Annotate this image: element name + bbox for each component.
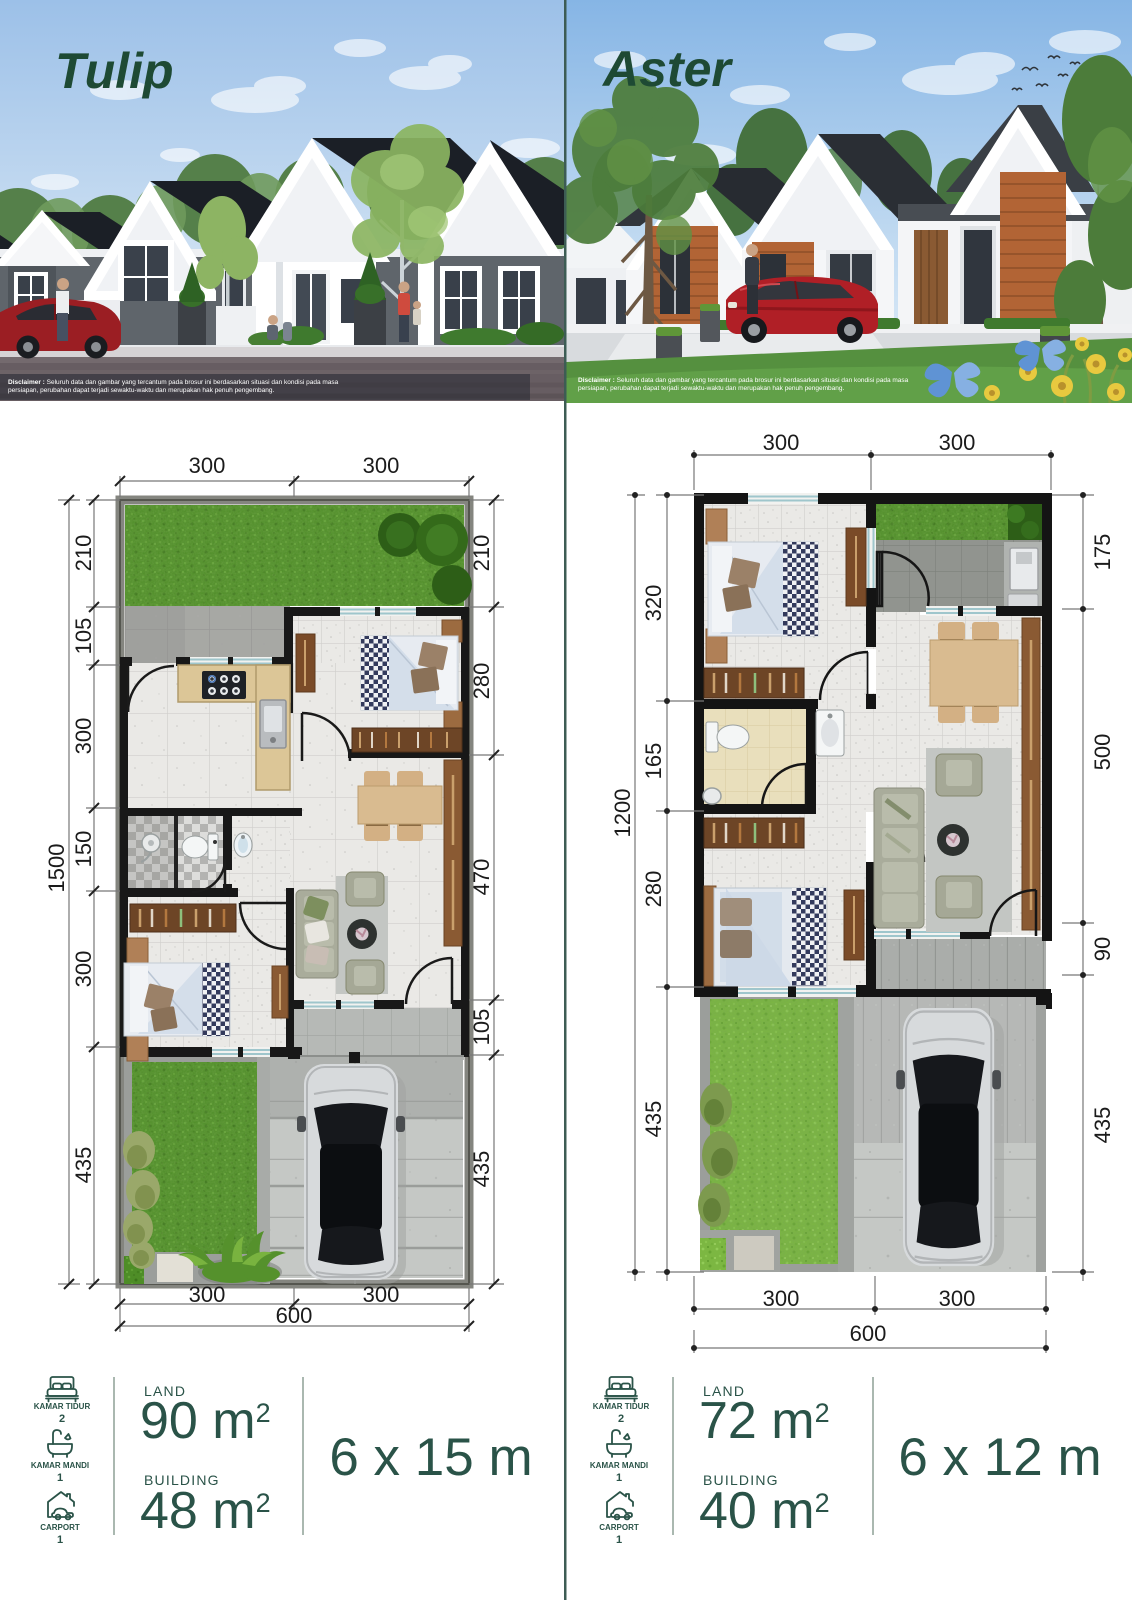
svg-text:300: 300 [71,951,96,988]
svg-text:1200: 1200 [610,789,635,838]
svg-text:KAMAR MANDI: KAMAR MANDI [31,1461,89,1470]
svg-text:210: 210 [469,535,494,572]
svg-text:300: 300 [189,1282,226,1307]
svg-text:150: 150 [71,831,96,868]
svg-text:1: 1 [57,1534,63,1546]
svg-text:300: 300 [363,453,400,478]
svg-text:280: 280 [641,871,666,908]
svg-text:persiapan, perubahan dapat ter: persiapan, perubahan dapat terjadi sewak… [578,385,845,392]
svg-text:600: 600 [276,1303,313,1328]
svg-text:300: 300 [189,453,226,478]
svg-text:300: 300 [71,718,96,755]
svg-text:300: 300 [363,1282,400,1307]
svg-text:Disclaimer : Seluruh data dan: Disclaimer : Seluruh data dan gambar yan… [8,379,339,386]
svg-text:105: 105 [71,618,96,655]
svg-text:2: 2 [59,1413,65,1425]
svg-text:72 m2: 72 m2 [699,1392,830,1450]
svg-text:500: 500 [1090,734,1115,771]
svg-text:CARPORT: CARPORT [40,1523,80,1532]
svg-text:90: 90 [1090,937,1115,961]
svg-text:165: 165 [641,743,666,780]
svg-text:320: 320 [641,585,666,622]
svg-text:KAMAR TIDUR: KAMAR TIDUR [34,1402,91,1411]
svg-text:300: 300 [763,1286,800,1311]
svg-text:300: 300 [939,430,976,455]
svg-text:435: 435 [71,1147,96,1184]
svg-text:300: 300 [939,1286,976,1311]
svg-text:Aster: Aster [601,41,733,97]
svg-text:KAMAR MANDI: KAMAR MANDI [590,1461,648,1470]
svg-text:435: 435 [469,1151,494,1188]
svg-text:1500: 1500 [44,844,69,893]
svg-text:210: 210 [71,535,96,572]
svg-text:1: 1 [57,1472,63,1484]
svg-text:90 m2: 90 m2 [140,1392,271,1450]
svg-text:1: 1 [616,1534,622,1546]
svg-text:280: 280 [469,663,494,700]
svg-text:600: 600 [850,1321,887,1346]
svg-text:Tulip: Tulip [55,43,174,99]
svg-text:40 m2: 40 m2 [699,1482,830,1540]
svg-text:6 x 15 m: 6 x 15 m [329,1428,532,1487]
svg-text:175: 175 [1090,534,1115,571]
svg-text:435: 435 [641,1101,666,1138]
svg-text:105: 105 [469,1009,494,1046]
svg-text:KAMAR TIDUR: KAMAR TIDUR [593,1402,650,1411]
svg-text:1: 1 [616,1472,622,1484]
svg-text:300: 300 [763,430,800,455]
svg-text:435: 435 [1090,1107,1115,1144]
svg-text:CARPORT: CARPORT [599,1523,639,1532]
svg-text:persiapan, perubahan dapat ter: persiapan, perubahan dapat terjadi sewak… [8,387,275,394]
svg-text:48 m2: 48 m2 [140,1482,271,1540]
svg-text:6 x 12 m: 6 x 12 m [898,1428,1101,1487]
svg-text:470: 470 [469,859,494,896]
svg-text:Disclaimer : Seluruh data dan: Disclaimer : Seluruh data dan gambar yan… [578,377,909,384]
svg-text:2: 2 [618,1413,624,1425]
